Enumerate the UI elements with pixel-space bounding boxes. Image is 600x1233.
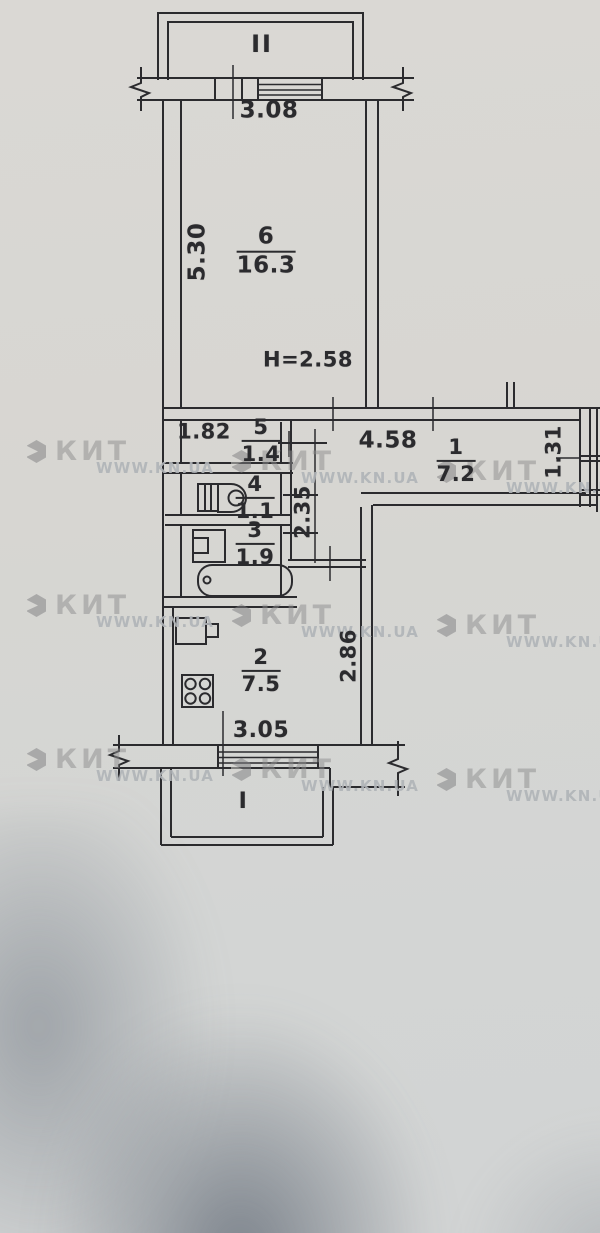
dim-kitchen-width: 3.05 xyxy=(233,720,289,742)
break-mark xyxy=(393,67,411,111)
window-glazing-bottom xyxy=(218,752,318,763)
plan-linework xyxy=(0,0,600,1233)
balcony-bottom-label: I xyxy=(239,791,248,813)
bath-sink-icon xyxy=(193,530,225,562)
room-label-wc: 4 1.1 xyxy=(236,473,275,523)
balcony-top-label: II xyxy=(251,32,273,56)
break-mark xyxy=(110,735,128,781)
break-mark xyxy=(131,67,149,111)
room-area: 7.5 xyxy=(242,672,281,696)
room-label-bath: 3 1.9 xyxy=(236,519,275,569)
window-glazing-top xyxy=(258,85,322,96)
bathtub-icon xyxy=(198,565,292,596)
room-label-kitchen: 2 7.5 xyxy=(242,646,281,696)
dim-sanitary-depth: 2.35 xyxy=(293,485,314,539)
room-area: 1.9 xyxy=(236,545,275,569)
dim-entry-width: 1.31 xyxy=(544,425,565,479)
room-number: 5 xyxy=(242,416,281,442)
room-area: 7.2 xyxy=(437,462,476,486)
ceiling-height-note: H=2.58 xyxy=(263,350,353,371)
room-label-corridor: 1 7.2 xyxy=(437,436,476,486)
dim-living-room-depth: 5.30 xyxy=(187,223,210,282)
room6-walls xyxy=(163,100,600,605)
room-number: 2 xyxy=(242,646,281,672)
stove-icon xyxy=(182,675,213,707)
dim-hall-width: 1.82 xyxy=(177,422,231,443)
room-area: 1.4 xyxy=(242,442,281,466)
room-area: 16.3 xyxy=(237,253,296,279)
floor-plan-photo: КИТКИТКИТКИТКИТКИТКИТКИТКИТWWW.KN.UAWWW.… xyxy=(0,0,600,1233)
room-label-living: 6 16.3 xyxy=(237,225,296,280)
kitchen-sink-icon xyxy=(176,618,218,644)
dim-corridor-width: 4.58 xyxy=(359,430,418,453)
room-label-hall: 5 1.4 xyxy=(242,416,281,466)
room-number: 3 xyxy=(236,519,275,545)
dim-kitchen-depth: 2.86 xyxy=(339,629,360,683)
room-number: 6 xyxy=(237,225,296,253)
dim-balcony-top-width: 3.08 xyxy=(240,100,299,123)
room-number: 1 xyxy=(437,436,476,462)
room-number: 4 xyxy=(236,473,275,499)
